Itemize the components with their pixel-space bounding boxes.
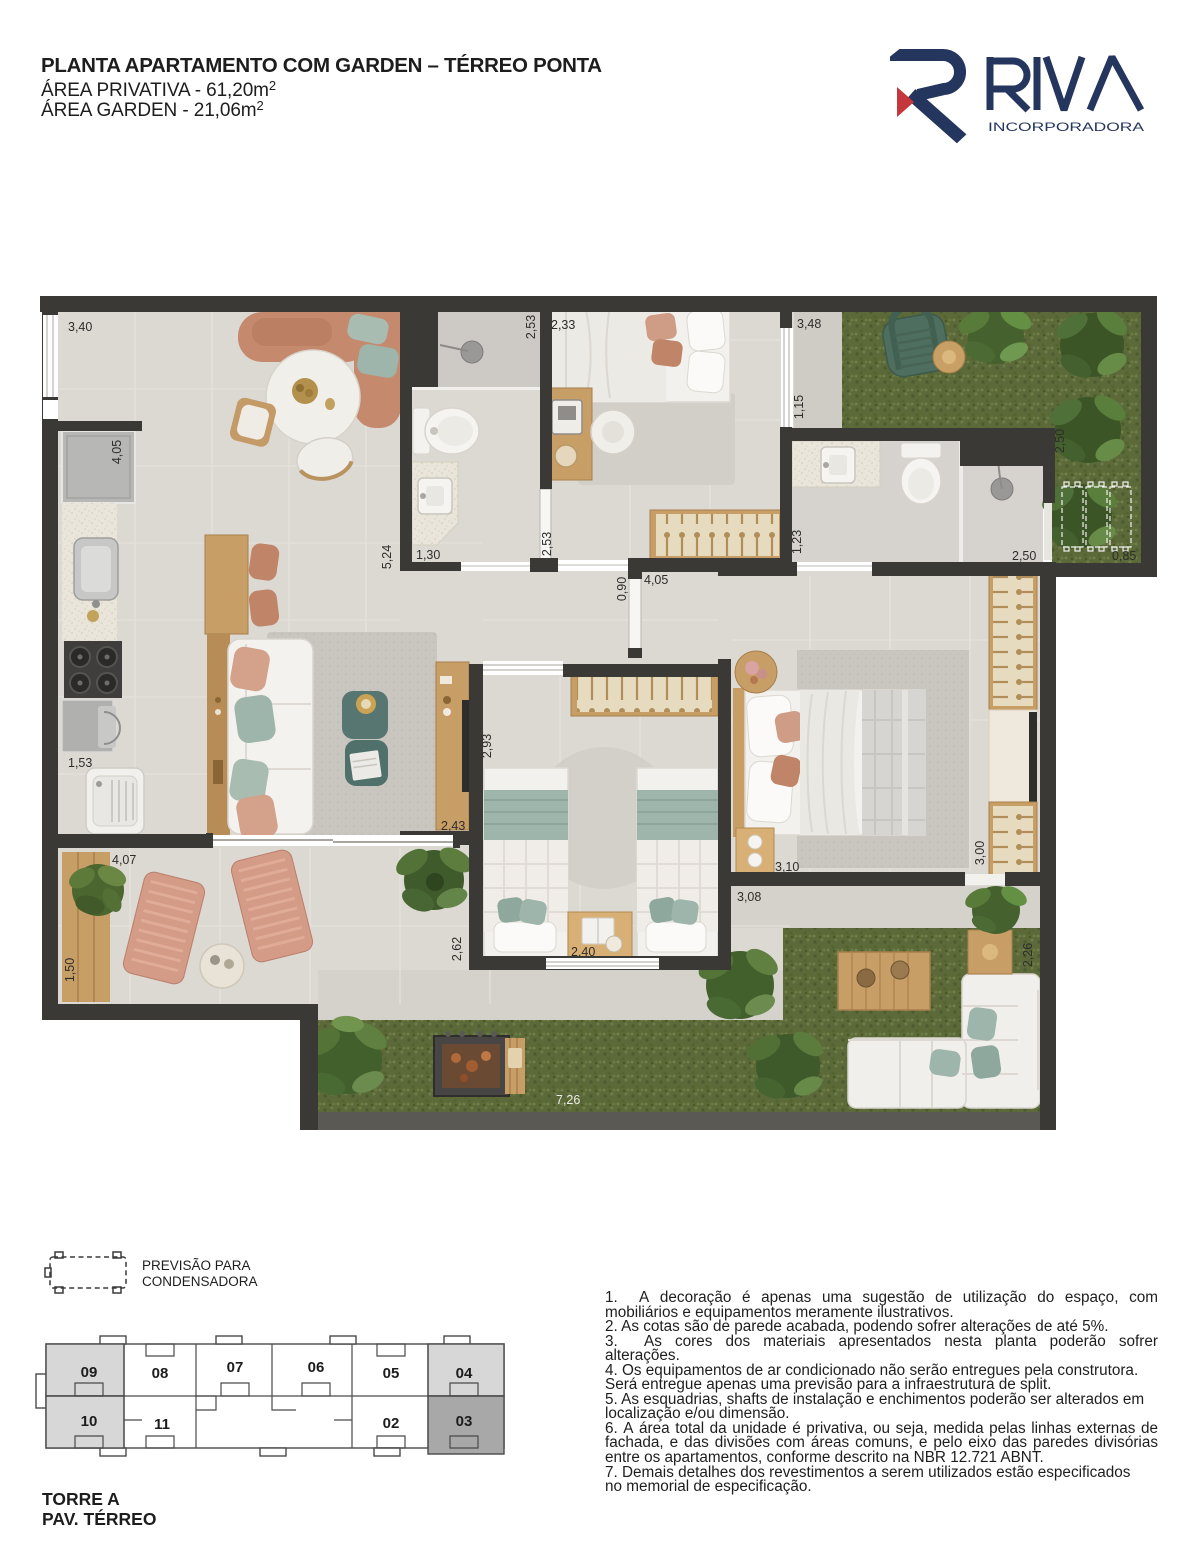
svg-text:2,40: 2,40 xyxy=(571,945,595,959)
svg-text:07: 07 xyxy=(227,1359,244,1376)
svg-text:PREVISÃO PARA: PREVISÃO PARA xyxy=(142,1258,251,1273)
svg-text:1,53: 1,53 xyxy=(68,756,92,770)
svg-text:2,50: 2,50 xyxy=(1053,429,1067,453)
svg-text:0,90: 0,90 xyxy=(615,577,629,601)
svg-text:1,15: 1,15 xyxy=(792,395,806,419)
svg-text:2,43: 2,43 xyxy=(441,819,465,833)
svg-text:03: 03 xyxy=(456,1413,473,1430)
svg-text:2,93: 2,93 xyxy=(480,734,494,758)
svg-text:3,00: 3,00 xyxy=(973,841,987,865)
svg-text:06: 06 xyxy=(308,1359,325,1376)
svg-text:11: 11 xyxy=(154,1416,170,1433)
svg-text:4,05: 4,05 xyxy=(110,440,124,464)
svg-text:INCORPORADORA: INCORPORADORA xyxy=(988,122,1144,134)
svg-text:2,33: 2,33 xyxy=(551,318,575,332)
svg-text:1,50: 1,50 xyxy=(63,958,77,982)
svg-text:05: 05 xyxy=(383,1365,400,1382)
svg-text:7,26: 7,26 xyxy=(556,1093,580,1107)
svg-text:2,50: 2,50 xyxy=(1012,549,1036,563)
svg-text:4,07: 4,07 xyxy=(112,853,136,867)
svg-text:TORRE A: TORRE A xyxy=(42,1489,120,1509)
svg-text:PAV. TÉRREO: PAV. TÉRREO xyxy=(42,1508,156,1529)
svg-text:2,62: 2,62 xyxy=(450,937,464,961)
svg-text:3,48: 3,48 xyxy=(797,317,821,331)
svg-text:3,40: 3,40 xyxy=(68,320,92,334)
svg-text:5,24: 5,24 xyxy=(380,545,394,569)
svg-text:0,85: 0,85 xyxy=(1112,549,1136,563)
svg-text:1,30: 1,30 xyxy=(416,548,440,562)
svg-text:3,10: 3,10 xyxy=(775,860,799,874)
svg-text:4,05: 4,05 xyxy=(644,573,668,587)
svg-text:3,08: 3,08 xyxy=(737,890,761,904)
svg-text:1,23: 1,23 xyxy=(790,530,804,554)
svg-text:10: 10 xyxy=(81,1413,98,1430)
svg-text:04: 04 xyxy=(456,1365,473,1382)
svg-text:CONDENSADORA: CONDENSADORA xyxy=(142,1274,258,1289)
svg-text:2,26: 2,26 xyxy=(1021,943,1035,967)
svg-text:2,53: 2,53 xyxy=(540,532,554,556)
svg-text:08: 08 xyxy=(152,1365,169,1382)
svg-text:2,53: 2,53 xyxy=(524,315,538,339)
svg-text:02: 02 xyxy=(383,1415,400,1432)
svg-text:09: 09 xyxy=(81,1364,98,1381)
